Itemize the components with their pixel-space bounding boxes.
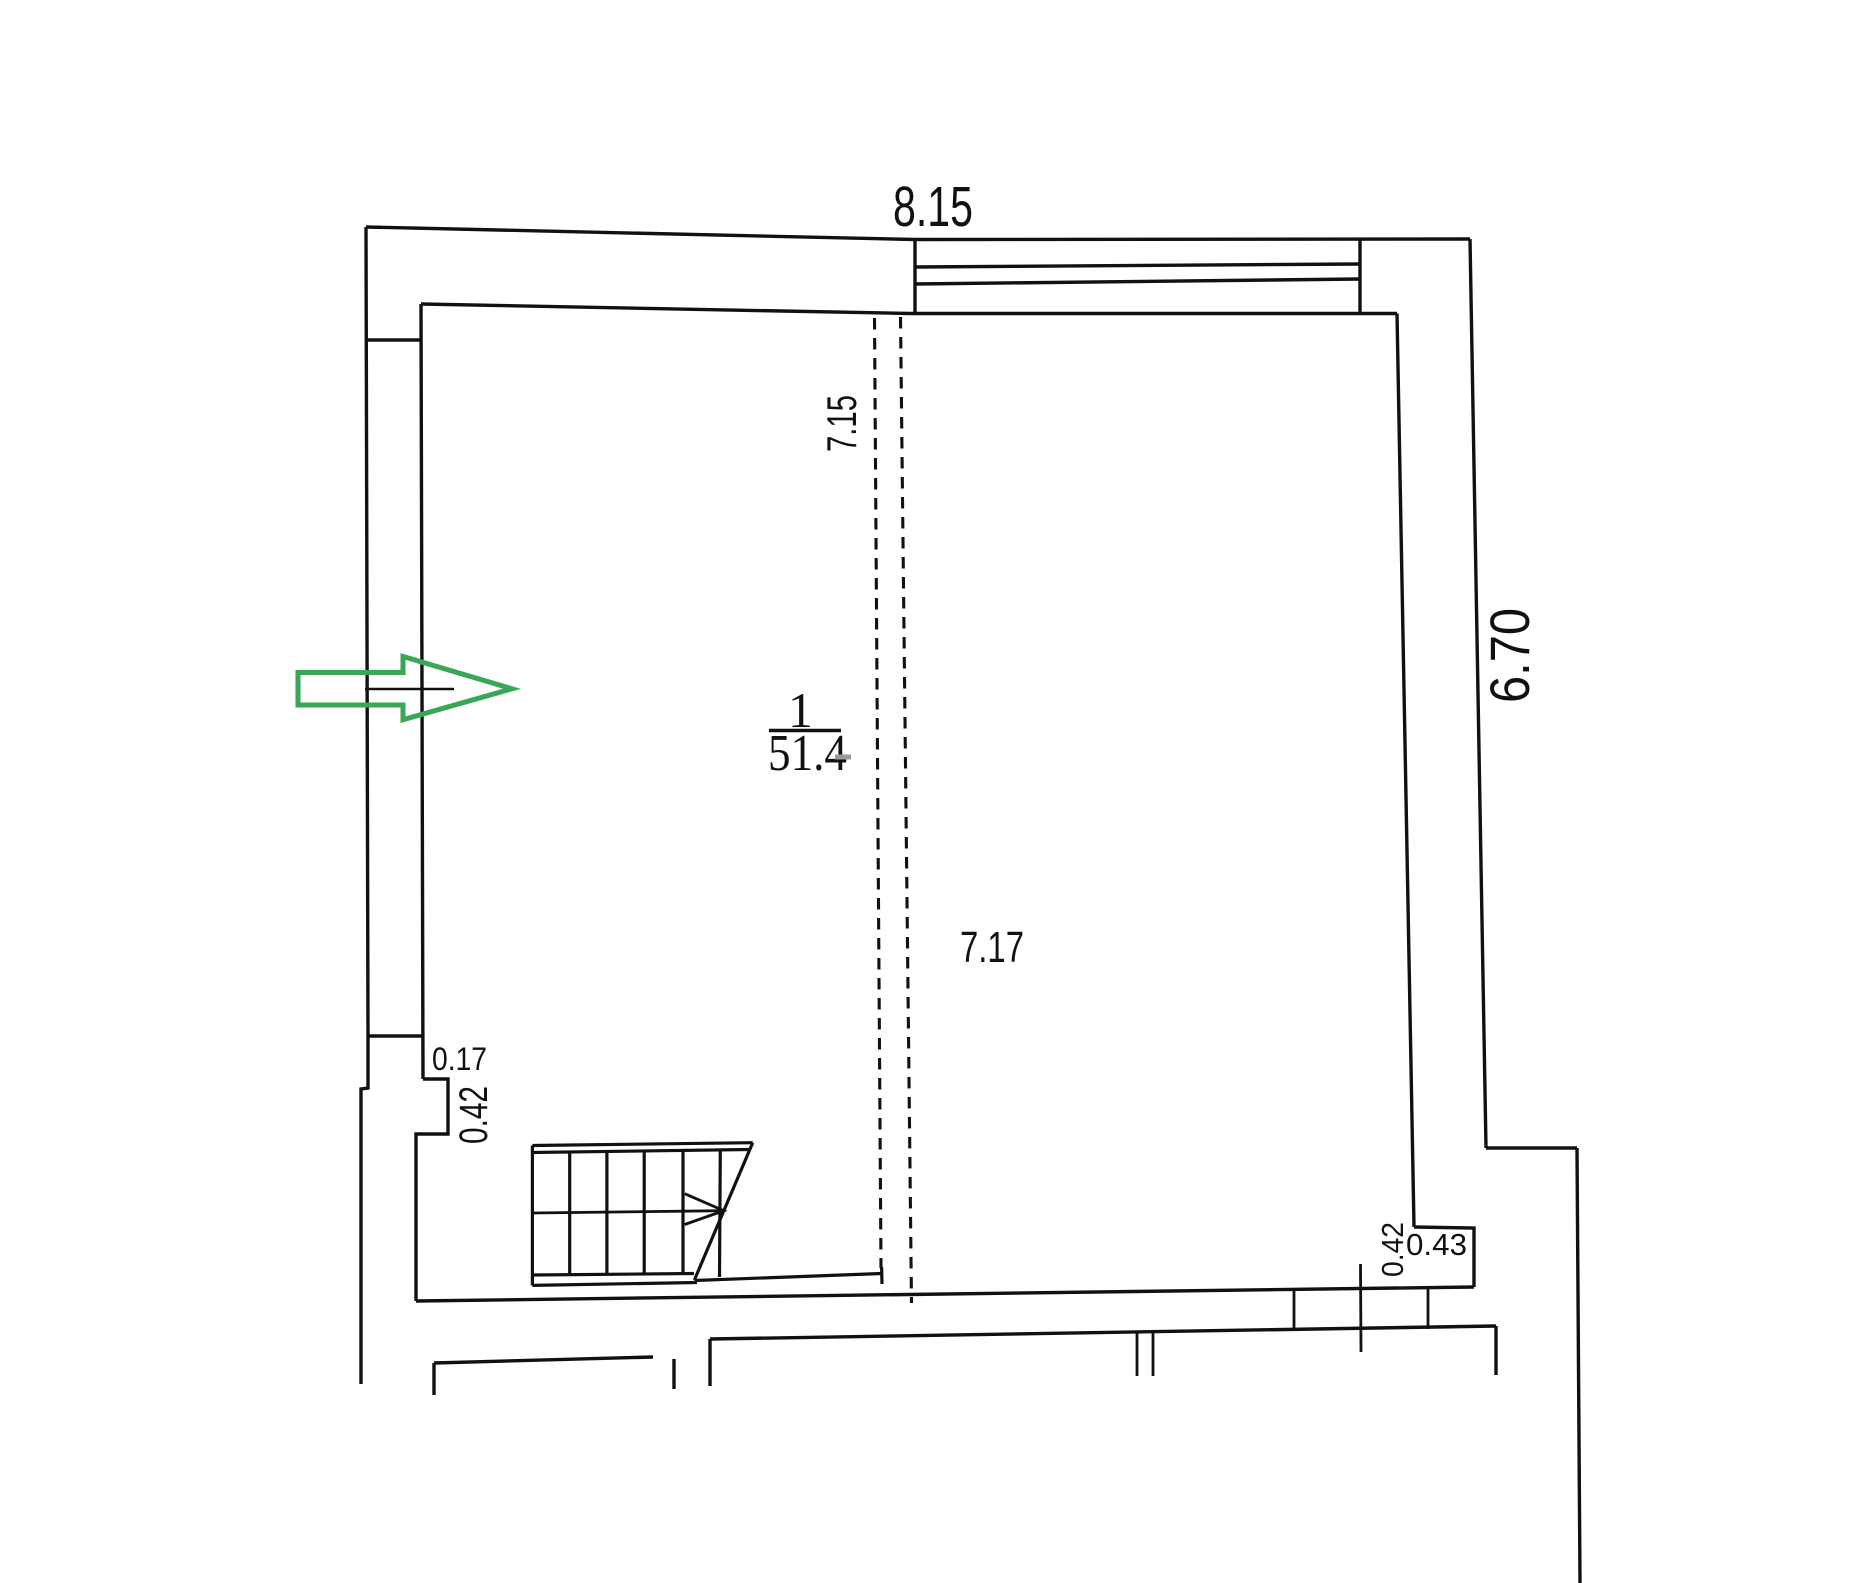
svg-text:6.70: 6.70 xyxy=(1478,608,1541,703)
svg-text:0.43: 0.43 xyxy=(1406,1227,1467,1262)
svg-text:51.4: 51.4 xyxy=(768,725,847,782)
svg-text:8.15: 8.15 xyxy=(893,175,973,239)
svg-text:0.42: 0.42 xyxy=(452,1086,496,1144)
svg-text:0.42: 0.42 xyxy=(1375,1222,1410,1277)
svg-text:7.15: 7.15 xyxy=(818,395,865,452)
svg-text:0.17: 0.17 xyxy=(432,1041,487,1077)
svg-text:7.17: 7.17 xyxy=(960,923,1024,972)
